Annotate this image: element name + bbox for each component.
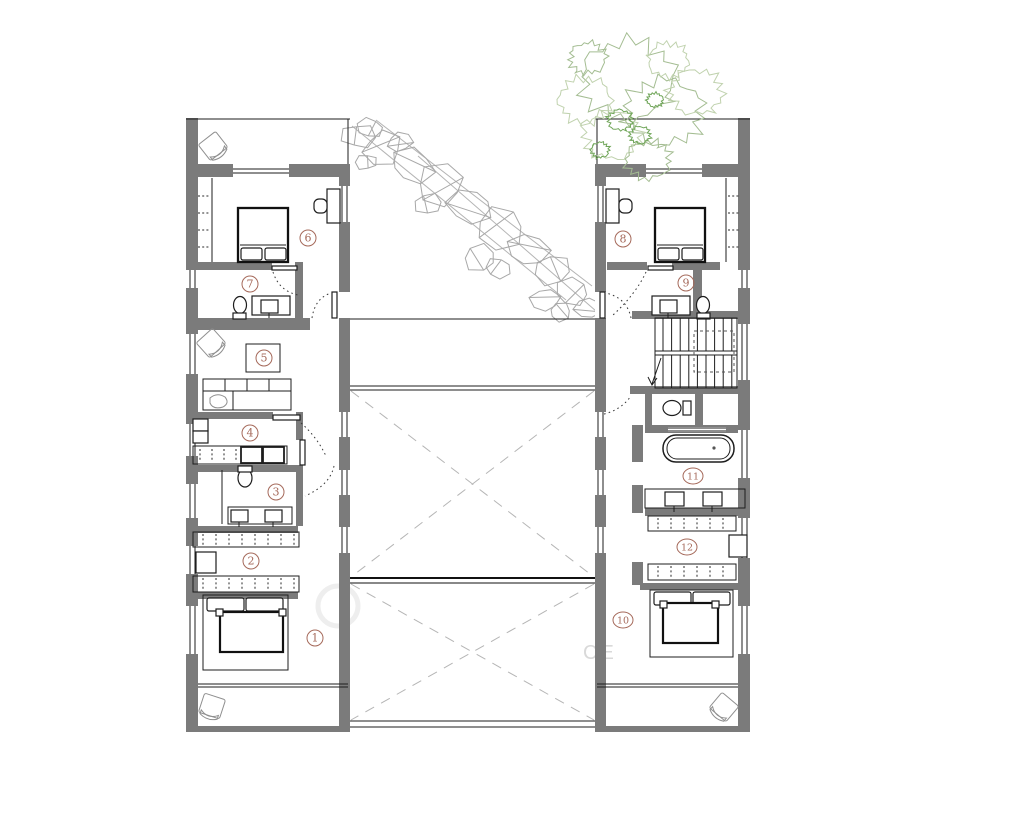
toilet-icon [697,297,710,314]
bedroom-6-wardrobe [198,178,212,262]
chair-balcony-bottom-right [707,692,739,724]
svg-text:12: 12 [681,542,693,553]
bed-room-10 [650,590,733,657]
floor-plan-svg: CE [0,0,1021,821]
room-label-2: 2 [243,553,259,569]
chair-balcony-top-left [198,131,230,163]
bathroom-7-fixtures [233,296,290,319]
bed-room-6 [238,208,288,262]
room-label-3: 3 [268,484,284,500]
staircase [648,318,737,388]
door-leaf [300,440,305,465]
room-label-1: 1 [307,630,323,646]
room-label-5: 5 [256,350,272,366]
room-label-8: 8 [615,231,631,247]
room-label-12: 12 [677,539,697,555]
room-label-7: 7 [242,276,258,292]
room-label-4: 4 [242,425,258,441]
bed-room-1 [203,595,288,670]
bathroom-9-fixtures [652,296,710,319]
chair-lounge-5 [196,328,228,360]
svg-text:2: 2 [248,555,255,568]
svg-text:7: 7 [247,278,254,291]
door-corridor-stairs [604,396,631,414]
svg-text:5: 5 [261,352,268,365]
svg-text:8: 8 [620,233,627,246]
rock-garden-sketch [341,117,604,322]
desk-room-8 [606,189,632,223]
sink-icon [665,492,684,506]
watermark: CE [318,586,617,664]
svg-text:11: 11 [687,471,699,482]
sofa-icon [203,379,291,410]
lounge-5-furniture [203,344,291,410]
svg-text:3: 3 [273,486,280,499]
door-corridor-courtyard-left [312,292,337,318]
sink-icon [660,300,677,313]
room-label-6: 6 [300,230,316,246]
desk-chair-icon [314,199,327,213]
sink-icon [703,492,722,506]
sink-icon [231,510,248,522]
sink-icon [261,300,278,313]
room-label-9: 9 [678,275,694,291]
svg-text:10: 10 [617,615,629,626]
room-label-10: 10 [613,612,633,628]
central-void [350,319,595,727]
closet-2-rails [193,532,299,592]
bathtub-icon [663,435,734,462]
svg-text:1: 1 [312,632,319,645]
room-4-fixtures [193,415,326,464]
svg-text:9: 9 [683,277,690,290]
bedroom-8-wardrobe [726,178,740,262]
floor-plan-page: CE [0,0,1021,821]
svg-text:6: 6 [305,232,312,245]
desk-chair-icon [619,199,632,213]
door-leaf [273,415,300,420]
door-room6-bath7 [272,266,298,295]
sink-icon [265,510,282,522]
toilet-icon [663,401,681,416]
bed-room-8 [655,208,705,262]
closet-12-rails [648,516,747,580]
toilet-icon [234,297,247,314]
chair-balcony-bottom-left [197,693,225,722]
desk-room-6 [314,189,340,223]
svg-text:4: 4 [247,427,254,440]
tree-sketch [557,33,727,182]
room-label-11: 11 [683,468,703,484]
door-corridor-courtyard-right [600,292,631,318]
